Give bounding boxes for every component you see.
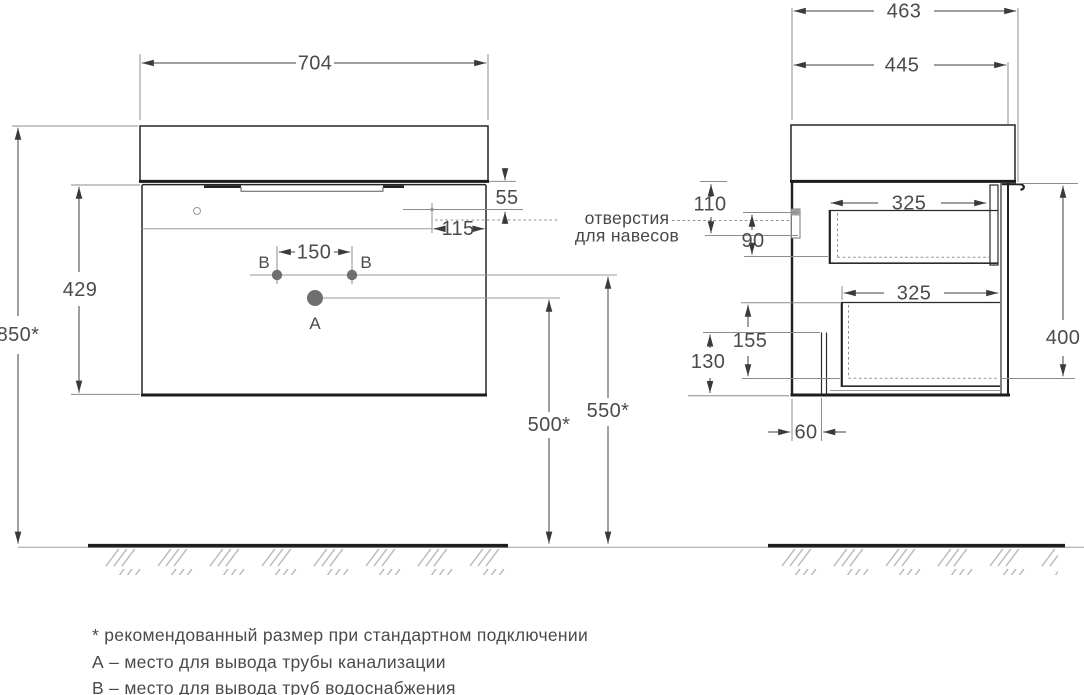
dim-drawer-bottom-level: 155 <box>733 303 840 376</box>
drawer-bottom-level-label: 155 <box>733 330 768 352</box>
recess-height-label: 130 <box>691 351 726 373</box>
floor-hatch-right <box>776 549 1058 575</box>
front-cabinet-body <box>141 185 487 395</box>
dim-hanger-bracket-height: 90 <box>741 213 828 257</box>
vanity-dimension-drawing: 704 <box>0 0 1084 695</box>
top-drawer-front-panel <box>990 185 998 265</box>
side-depth-label: 463 <box>887 1 922 23</box>
side-body-height-label: 400 <box>1046 327 1081 349</box>
legend-note-b: В – место для вывода труб водоснабжения <box>92 678 456 695</box>
water-height-label: 550* <box>587 400 630 422</box>
top-drawer-depth-label: 325 <box>892 193 927 215</box>
front-countertop <box>139 126 489 181</box>
front-width-label: 704 <box>298 53 333 75</box>
bottom-drawer-depth-label: 325 <box>897 283 932 305</box>
side-handle-profile <box>1002 184 1024 190</box>
dim-hole-below-top: 55 <box>489 168 519 224</box>
hanger-hole-left <box>194 208 201 215</box>
water-outlet-right <box>347 270 357 280</box>
hole-offset-v-label: 55 <box>495 187 518 209</box>
side-pipe-recess <box>822 333 827 395</box>
floor <box>18 546 1084 575</box>
dim-side-body-height: 400 <box>1016 184 1080 377</box>
hanger-offset-label: 110 <box>693 194 726 216</box>
dim-side-overall-depth: 463 <box>792 1 1018 183</box>
outlet-reference-lines <box>250 275 617 298</box>
dim-drain-height: 500* <box>528 300 571 544</box>
front-body-height-label: 429 <box>63 279 98 301</box>
drain-height-label: 500* <box>528 414 571 436</box>
floor-hatch-left <box>96 549 508 575</box>
hanger-note-line2: для навесов <box>575 226 679 246</box>
dim-bottom-drawer-depth: 325 <box>842 283 998 305</box>
legend-note-asterisk: * рекомендованный размер при стандартном… <box>92 625 588 645</box>
hole-offset-h-label: 115 <box>441 218 474 240</box>
dim-recess-depth: 60 <box>768 398 846 444</box>
side-hanger-bracket <box>792 209 801 238</box>
dim-water-height: 550* <box>587 277 630 544</box>
dim-water-holes-spacing: 150 <box>277 242 352 285</box>
dim-front-overall-width: 704 <box>140 53 488 121</box>
front-handle-recess <box>204 187 404 192</box>
water-outlet-left <box>272 270 282 280</box>
recess-depth-label: 60 <box>794 422 817 444</box>
mount-height-label: 850* <box>0 324 39 346</box>
hanger-bracket-height-label: 90 <box>741 230 764 252</box>
technical-drawing-page: 704 <box>0 0 1084 695</box>
dim-hanger-offset: 110 <box>693 182 798 236</box>
water-label-left: B <box>258 253 269 272</box>
dim-mount-height: 850* <box>0 126 138 544</box>
legend-note-a: А – место для вывода трубы канализации <box>92 652 446 672</box>
dim-side-body-depth: 445 <box>794 55 1008 125</box>
side-countertop <box>790 125 1016 181</box>
dim-hole-from-edge: 115 <box>434 218 485 240</box>
dim-front-body-height: 429 <box>63 185 140 394</box>
water-spacing-label: 150 <box>297 242 332 264</box>
side-view: 463 445 <box>688 1 1080 444</box>
drain-label: A <box>309 314 321 333</box>
dim-top-drawer-depth: 325 <box>831 193 986 215</box>
side-bottom-drawer <box>830 302 1001 391</box>
legend: * рекомендованный размер при стандартном… <box>92 625 588 695</box>
side-body-depth-label: 445 <box>885 55 920 77</box>
hanger-hole-right <box>430 208 434 212</box>
water-label-right: B <box>360 253 371 272</box>
drain-outlet <box>307 290 323 306</box>
outlet-points: B B A <box>258 253 371 333</box>
front-view: 704 <box>0 53 629 544</box>
